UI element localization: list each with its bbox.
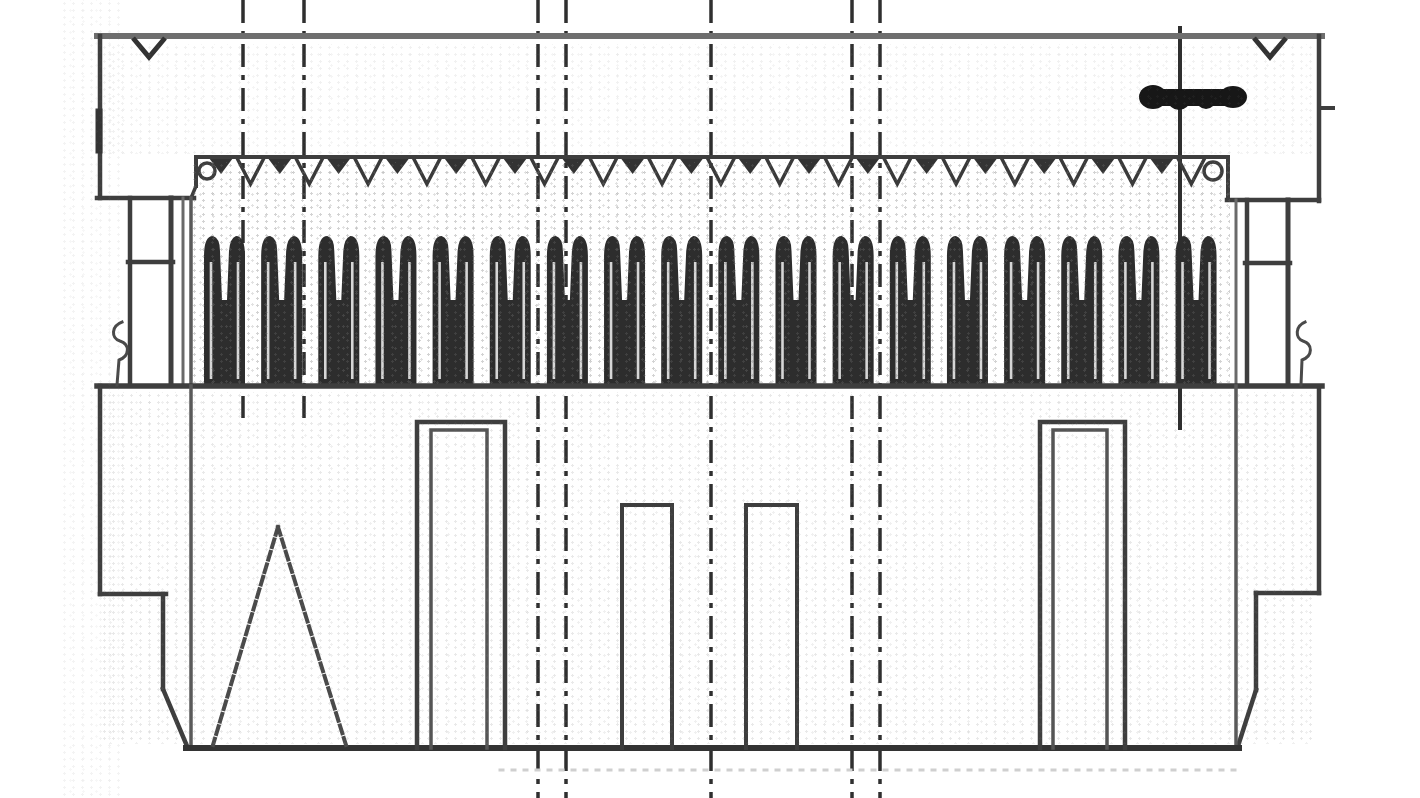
serration-vee [884,158,911,184]
serration-vee [1119,158,1146,184]
serration-tooth [915,158,939,174]
serration-tooth [1150,158,1174,174]
serration-tooth [385,158,409,174]
left-ear-notch [133,38,165,57]
serration-vee [531,158,558,184]
serration-tooth [503,158,527,174]
cable-end-loop-left [199,163,215,179]
connector-drawing-svg [0,0,1420,798]
serration-vee [237,158,264,184]
serration-tooth [268,158,292,174]
serration-tooth [1091,158,1115,174]
keying-slot-right-inner [1053,430,1107,748]
left-spring-squiggle [113,322,127,385]
serration-tooth [621,158,645,174]
serration-vee [1060,158,1087,184]
center-slot-right [746,505,797,748]
serration-vee [355,158,382,184]
right-ear-notch [1254,38,1286,57]
ink-blob-dot [1139,85,1167,109]
ink-blob-mark [1139,85,1247,110]
serration-vee [766,158,793,184]
left-bottom-chamfer [163,689,187,746]
serration-tooth [738,158,762,174]
serration-tooth [973,158,997,174]
serration-vee [825,158,852,184]
serration-vee [943,158,970,184]
serration-vee [413,158,440,184]
ink-blob-dot [1196,89,1216,109]
cable-end-loop-right [1204,162,1222,180]
polarity-triangle-left-leg [213,527,278,745]
serration-tooth [327,158,351,174]
marks-group [1139,85,1247,110]
right-bottom-chamfer [1238,690,1256,746]
serration-vee [296,158,323,184]
right-spring-squiggle [1297,322,1310,385]
ink-blob-dot [1219,86,1247,108]
serration-tooth [797,158,821,174]
idc-connector-technical-drawing [0,0,1420,798]
serration-group [209,158,1205,184]
serration-vee [649,158,676,184]
serration-vee [472,158,499,184]
polarity-triangle-right-leg [278,527,346,745]
outline-group [97,36,1333,770]
serration-tooth [1032,158,1056,174]
serration-vee [590,158,617,184]
ink-blob-dot [1168,90,1190,110]
keying-slot-left-inner [431,430,487,748]
center-slot-left [622,505,672,748]
serration-tooth [856,158,880,174]
serration-vee [1001,158,1028,184]
serration-tooth [444,158,468,174]
serration-tooth [679,158,703,174]
